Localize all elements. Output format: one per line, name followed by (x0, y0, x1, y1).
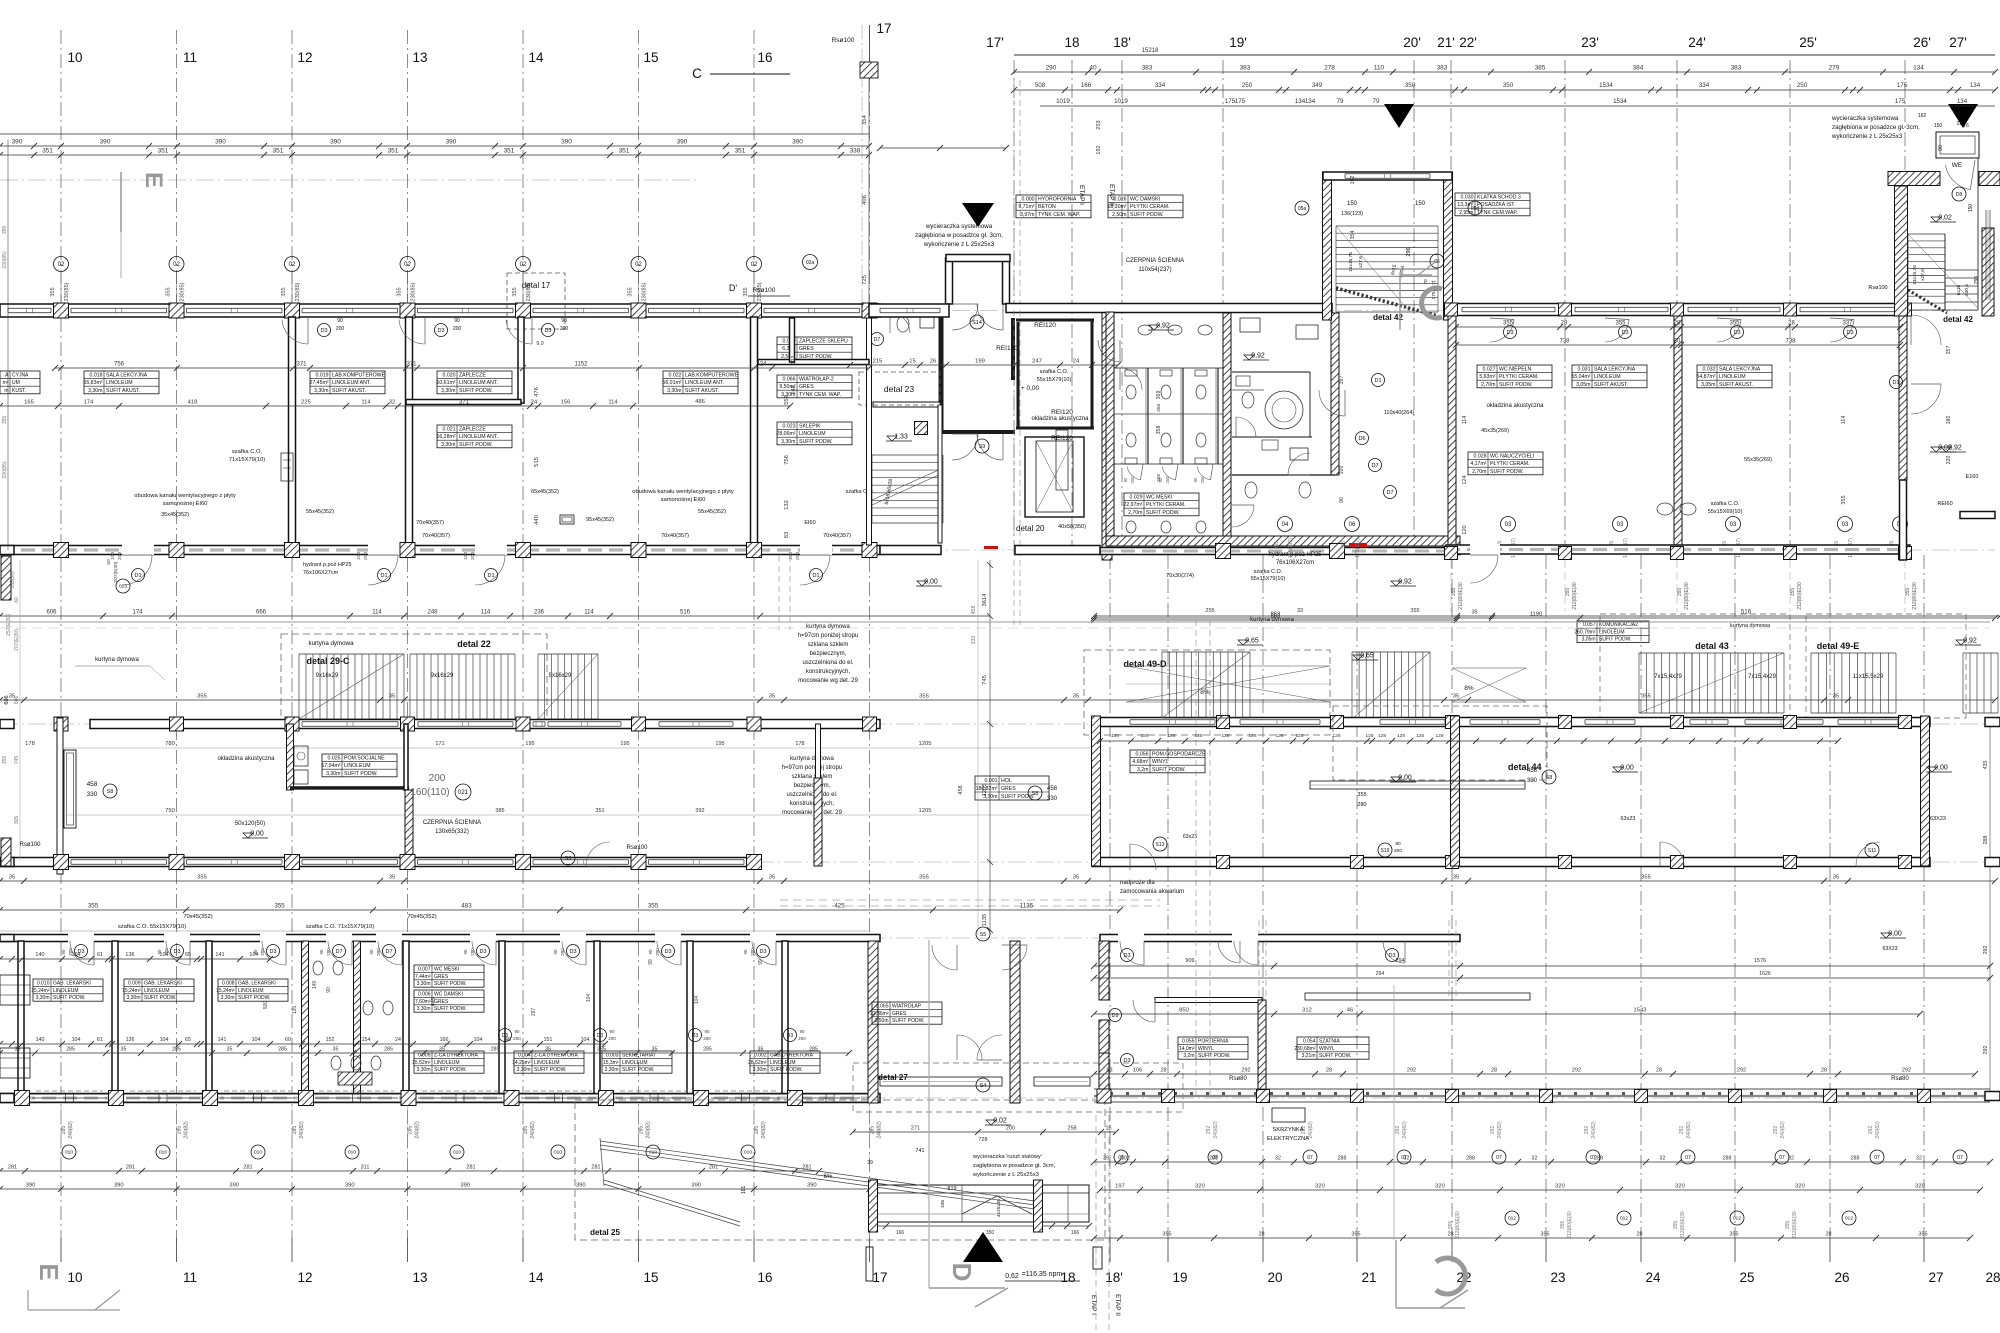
svg-text:166: 166 (1071, 1230, 1080, 1236)
svg-text:GRES: GRES (892, 1011, 907, 1017)
svg-text:7x15,4x29: 7x15,4x29 (1654, 674, 1682, 680)
svg-text:D3: D3 (664, 949, 671, 955)
svg-text:383: 383 (1437, 65, 1448, 72)
svg-text:114: 114 (372, 610, 382, 616)
svg-text:szafka C.O.: szafka C.O. (1040, 369, 1069, 375)
svg-text:0.010: 0.010 (37, 980, 50, 986)
svg-text:Rsø100: Rsø100 (832, 37, 855, 44)
svg-text:35: 35 (1471, 610, 1477, 616)
svg-text:154: 154 (362, 1037, 371, 1043)
svg-text:SUFIT PODW.: SUFIT PODW. (53, 995, 85, 1001)
svg-text:114: 114 (361, 400, 371, 406)
svg-text:114: 114 (584, 610, 594, 616)
svg-text:0,02: 0,02 (1938, 445, 1952, 452)
svg-text:7x15,4x29: 7x15,4x29 (1748, 674, 1776, 680)
svg-text:63x23: 63x23 (1621, 816, 1636, 822)
svg-text:35: 35 (769, 694, 775, 700)
svg-text:606: 606 (14, 696, 20, 705)
svg-text:390: 390 (576, 1183, 586, 1189)
svg-text:175: 175 (1235, 98, 1246, 105)
svg-text:355: 355 (1841, 495, 1847, 504)
svg-text:134: 134 (1913, 65, 1924, 72)
svg-text:285: 285 (384, 1047, 393, 1053)
svg-text:149: 149 (312, 981, 318, 990)
svg-text:128: 128 (1397, 733, 1405, 739)
svg-text:28,06m²: 28,06m² (776, 431, 795, 437)
svg-text:104: 104 (474, 1037, 483, 1043)
svg-text:15: 15 (643, 50, 658, 65)
svg-text:LINOLEUM ANT.: LINOLEUM ANT. (459, 380, 498, 386)
svg-text:750: 750 (165, 808, 175, 814)
svg-text:LINOLEUM: LINOLEUM (1599, 629, 1625, 635)
svg-text:55,04m²: 55,04m² (1571, 374, 1590, 380)
svg-text:SUFIT PODW.: SUFIT PODW. (1130, 212, 1164, 218)
svg-text:okładzina akustyczna: okładzina akustyczna (217, 756, 275, 762)
svg-text:358: 358 (1156, 474, 1162, 482)
svg-text:281: 281 (126, 1165, 135, 1171)
svg-text:ETAP II: ETAP II (1114, 1294, 1121, 1316)
svg-text:285: 285 (61, 1126, 67, 1135)
svg-text:07: 07 (1779, 1155, 1785, 1161)
svg-text:200: 200 (336, 326, 345, 332)
svg-text:3,30m: 3,30m (441, 442, 455, 448)
svg-text:195: 195 (715, 741, 724, 747)
svg-text:D3: D3 (1846, 330, 1853, 336)
svg-text:212(80)E|30: 212(80)E|30 (1567, 1211, 1573, 1239)
svg-text:28: 28 (1821, 1068, 1827, 1074)
svg-text:LINOLEUM: LINOLEUM (238, 988, 264, 994)
svg-text:756: 756 (784, 455, 790, 465)
svg-text:104: 104 (72, 1037, 81, 1043)
svg-text:LINOLEUM ANT.: LINOLEUM ANT. (332, 380, 371, 386)
svg-text:371: 371 (406, 362, 417, 368)
svg-text:90: 90 (609, 1029, 615, 1034)
svg-text:355: 355 (1410, 608, 1419, 614)
svg-text:281: 281 (243, 1165, 252, 1171)
svg-text:355: 355 (1357, 792, 1366, 798)
svg-text:1626: 1626 (1759, 971, 1771, 977)
svg-text:0,02: 0,02 (993, 1118, 1007, 1125)
svg-text:200: 200 (326, 948, 331, 956)
svg-text:508: 508 (1035, 82, 1046, 89)
svg-text:kurtyna dymowa: kurtyna dymowa (95, 657, 139, 663)
svg-text:2,70m: 2,70m (1128, 510, 1142, 516)
svg-text:76x106X27cm: 76x106X27cm (1276, 560, 1314, 566)
svg-text:3,30m: 3,30m (127, 995, 141, 1001)
svg-text:350: 350 (1503, 82, 1514, 89)
svg-text:04: 04 (1282, 522, 1289, 528)
svg-text:355: 355 (628, 287, 634, 296)
svg-text:CYJNA: CYJNA (12, 373, 29, 379)
svg-text:195: 195 (525, 741, 534, 747)
svg-text:166: 166 (440, 1037, 449, 1043)
svg-text:90: 90 (319, 949, 324, 955)
svg-text:390: 390 (215, 139, 226, 146)
svg-text:POM.SOCJALNE: POM.SOCJALNE (344, 756, 385, 762)
svg-text:55x15X69(10): 55x15X69(10) (1708, 509, 1743, 515)
svg-text:355: 355 (1641, 875, 1651, 881)
svg-text:33: 33 (1297, 608, 1303, 614)
svg-text:h=97cm poniżej stropu: h=97cm poniżej stropu (798, 633, 859, 639)
svg-text:141: 141 (215, 952, 224, 958)
svg-text:m: m (4, 388, 8, 394)
svg-text:666: 666 (256, 610, 267, 616)
svg-text:128: 128 (1248, 733, 1256, 739)
svg-text:24: 24 (1073, 359, 1080, 365)
svg-text:104: 104 (581, 1037, 590, 1043)
svg-text:240(82): 240(82) (877, 1121, 883, 1139)
svg-text:28: 28 (1788, 321, 1795, 327)
svg-text:458: 458 (1047, 786, 1058, 792)
svg-text:355: 355 (1451, 588, 1457, 597)
svg-text:KLATKA SCHOD.3: KLATKA SCHOD.3 (1477, 195, 1521, 201)
svg-text:355: 355 (2, 226, 8, 235)
svg-text:240(82): 240(82) (1875, 1121, 1881, 1139)
svg-text:70x40(357): 70x40(357) (661, 533, 689, 539)
svg-text:70x45(352): 70x45(352) (407, 914, 436, 920)
svg-text:50x120(50): 50x120(50) (235, 821, 265, 827)
svg-text:35: 35 (439, 1047, 445, 1053)
svg-text:230(85): 230(85) (2, 461, 8, 479)
svg-text:SUFIT PODW.: SUFIT PODW. (1499, 382, 1533, 388)
svg-text:SUFIT PODW.: SUFIT PODW. (1599, 637, 1631, 643)
svg-text:258: 258 (1067, 1126, 1076, 1132)
svg-text:55x15X79(10): 55x15X79(10) (1037, 377, 1072, 383)
svg-text:330: 330 (87, 791, 98, 798)
svg-text:REI120: REI120 (996, 345, 1018, 352)
svg-text:6x15: 6x15 (1956, 284, 1962, 295)
svg-text:9x16x29: 9x16x29 (549, 673, 572, 679)
svg-text:+ 0,00: + 0,00 (1021, 385, 1040, 392)
svg-text:19: 19 (1172, 1270, 1187, 1285)
svg-text:320: 320 (1915, 1184, 1925, 1190)
svg-text:60: 60 (106, 559, 112, 565)
svg-text:175: 175 (1895, 98, 1906, 105)
svg-text:369: 369 (1156, 391, 1162, 400)
svg-text:3,50m: 3,50m (875, 1018, 889, 1024)
svg-text:290: 290 (1046, 65, 1057, 72)
svg-text:0,92: 0,92 (1156, 323, 1170, 330)
svg-text:SUFIT PODW.: SUFIT PODW. (238, 995, 270, 1001)
svg-text:0.026: 0.026 (1114, 197, 1127, 203)
svg-text:257: 257 (1946, 346, 1952, 355)
svg-text:515: 515 (534, 457, 540, 467)
svg-text:134: 134 (1305, 98, 1316, 105)
svg-text:292: 292 (1983, 946, 1989, 955)
svg-text:h=97cm poniżej stropu: h=97cm poniżej stropu (782, 765, 843, 771)
svg-text:63x23: 63x23 (1183, 834, 1197, 840)
svg-text:35: 35 (389, 875, 395, 881)
svg-text:WC MĘSKI: WC MĘSKI (1146, 495, 1172, 501)
svg-text:15,24m²: 15,24m² (122, 988, 141, 994)
svg-text:200: 200 (376, 948, 381, 956)
svg-text:128: 128 (1167, 733, 1175, 739)
svg-text:03: 03 (1730, 522, 1737, 528)
svg-text:248: 248 (427, 610, 438, 616)
svg-text:240(82): 240(82) (1213, 1121, 1219, 1139)
svg-text:320: 320 (1195, 1184, 1205, 1190)
svg-text:355: 355 (88, 903, 99, 910)
svg-text:292: 292 (1983, 1046, 1989, 1055)
svg-text:D1: D1 (487, 573, 494, 579)
svg-text:013: 013 (119, 584, 127, 590)
svg-text:010: 010 (554, 1150, 562, 1156)
svg-text:70x45(352): 70x45(352) (183, 914, 212, 920)
svg-text:0,00: 0,00 (1398, 775, 1412, 782)
svg-text:SUFIT PODW.: SUFIT PODW. (770, 1067, 802, 1073)
svg-text:SUFIT PODW.: SUFIT PODW. (1146, 510, 1180, 516)
svg-text:35: 35 (758, 1047, 764, 1053)
svg-text:114: 114 (1841, 416, 1847, 425)
svg-text:355(30): 355(30) (10, 571, 16, 589)
svg-text:0,65: 0,65 (1245, 638, 1259, 645)
svg-text:63: 63 (1106, 1068, 1112, 1074)
svg-text:368: 368 (1156, 404, 1162, 412)
svg-text:D3: D3 (1388, 953, 1395, 959)
svg-text:279: 279 (1829, 65, 1840, 72)
svg-text:wycieraczka systemowa: wycieraczka systemowa (925, 223, 993, 230)
svg-text:136(123): 136(123) (1341, 211, 1363, 217)
svg-text:07: 07 (1874, 1155, 1880, 1161)
svg-text:0.025: 0.025 (328, 756, 341, 762)
svg-text:0.023: 0.023 (783, 424, 796, 430)
svg-text:LAB.KOMPUTEROWE: LAB.KOMPUTEROWE (332, 373, 386, 379)
svg-text:3,30m: 3,30m (781, 439, 795, 445)
svg-text:detal 49-D: detal 49-D (1123, 659, 1167, 669)
svg-text:99: 99 (648, 959, 654, 965)
svg-text:1205: 1205 (919, 741, 932, 747)
svg-text:15: 15 (1105, 1126, 1111, 1132)
svg-text:296: 296 (1406, 247, 1412, 256)
svg-text:3,30m: 3,30m (326, 771, 340, 777)
svg-text:39: 39 (867, 1160, 873, 1166)
svg-text:355: 355 (512, 287, 518, 296)
svg-text:detal 42: detal 42 (1373, 313, 1403, 322)
svg-text:60: 60 (285, 1037, 291, 1043)
svg-text:278: 278 (1324, 65, 1335, 72)
svg-text:samonośnej EI60: samonośnej EI60 (163, 501, 208, 507)
svg-text:305: 305 (14, 816, 20, 825)
svg-text:detal 25: detal 25 (590, 1228, 620, 1237)
svg-text:22,36m²: 22,36m² (870, 1011, 889, 1017)
svg-text:010: 010 (254, 1150, 262, 1156)
svg-text:28,52m²: 28,52m² (748, 1060, 767, 1066)
svg-text:GRES: GRES (434, 999, 449, 1005)
svg-text:128: 128 (1332, 733, 1340, 739)
svg-text:x27,6: x27,6 (1920, 269, 1926, 281)
svg-text:61: 61 (97, 1037, 103, 1043)
svg-text:355: 355 (197, 875, 207, 881)
svg-text:247: 247 (1032, 359, 1042, 365)
svg-text:281: 281 (591, 1165, 600, 1171)
svg-text:292: 292 (1241, 1068, 1250, 1074)
svg-text:355: 355 (919, 875, 929, 881)
svg-text:351: 351 (504, 148, 515, 155)
svg-text:PŁYTKI CERAM.: PŁYTKI CERAM. (1490, 461, 1530, 467)
svg-text:174: 174 (132, 610, 143, 616)
svg-text:HOL: HOL (1001, 778, 1012, 784)
svg-text:Rsø80: Rsø80 (1229, 1076, 1247, 1082)
svg-text:165: 165 (24, 400, 34, 406)
svg-text:199: 199 (975, 359, 985, 365)
svg-text:S14: S14 (972, 320, 982, 326)
svg-text:240(82): 240(82) (1402, 1121, 1408, 1139)
svg-text:PORTIERNIA: PORTIERNIA (1198, 1038, 1229, 1044)
svg-text:0.018: 0.018 (90, 373, 103, 379)
svg-text:0.019: 0.019 (316, 373, 329, 379)
svg-text:140: 140 (36, 1037, 45, 1043)
svg-text:Rsø100: Rsø100 (753, 287, 776, 294)
svg-text:28: 28 (1447, 1232, 1453, 1238)
svg-text:240(82): 240(82) (184, 1121, 190, 1139)
svg-text:26: 26 (930, 359, 936, 365)
svg-text:SUFIT PODW.: SUFIT PODW. (434, 981, 466, 987)
svg-text:32: 32 (389, 400, 395, 406)
svg-text:54,87m²: 54,87m² (1696, 374, 1715, 380)
svg-text:4,17m²: 4,17m² (1470, 461, 1486, 467)
svg-text:355: 355 (1918, 1232, 1927, 1238)
svg-text:100: 100 (356, 552, 362, 560)
svg-text:292: 292 (1902, 1068, 1911, 1074)
svg-text:02: 02 (635, 262, 642, 268)
svg-text:150: 150 (1956, 121, 1965, 127)
svg-text:271: 271 (911, 1126, 920, 1132)
svg-text:516: 516 (680, 610, 691, 616)
svg-text:1205: 1205 (982, 784, 988, 797)
svg-text:GAB. LEKARSKI: GAB. LEKARSKI (53, 980, 91, 986)
svg-text:136: 136 (126, 1037, 135, 1043)
svg-text:312: 312 (1302, 1008, 1312, 1014)
svg-text:03: 03 (1505, 522, 1512, 528)
svg-text:07: 07 (1957, 1155, 1963, 1161)
svg-text:150: 150 (1934, 123, 1943, 129)
svg-text:458: 458 (87, 781, 98, 788)
svg-text:212(80)E|30: 212(80)E|30 (1680, 1211, 1686, 1239)
svg-text:GRES: GRES (799, 384, 814, 390)
svg-text:GRES: GRES (1001, 786, 1016, 792)
svg-text:780: 780 (165, 741, 175, 747)
svg-text:355: 355 (1560, 1221, 1566, 1230)
svg-text:355: 355 (1448, 1221, 1454, 1230)
svg-text:100: 100 (110, 552, 116, 560)
svg-text:104: 104 (252, 1037, 261, 1043)
svg-text:SUFIT PODW.: SUFIT PODW. (344, 771, 378, 777)
svg-text:3,30m: 3,30m (221, 995, 235, 1001)
svg-text:14,0m²: 14,0m² (1179, 1046, 1195, 1052)
svg-text:371: 371 (296, 362, 307, 368)
svg-text:128: 128 (1221, 733, 1229, 739)
svg-text:200: 200 (470, 948, 475, 956)
svg-text:110x54(237): 110x54(237) (1138, 267, 1171, 273)
svg-text:0,00: 0,00 (1934, 765, 1948, 772)
svg-text:WIATROŁAP-2: WIATROŁAP-2 (799, 377, 834, 383)
svg-text:55x35(269): 55x35(269) (1744, 457, 1772, 463)
svg-text:SALA LEKCYJNA: SALA LEKCYJNA (1719, 367, 1761, 373)
svg-text:2,70m: 2,70m (1481, 382, 1495, 388)
svg-text:200: 200 (655, 948, 660, 956)
svg-text:02: 02 (58, 262, 65, 268)
svg-text:detal 17: detal 17 (522, 281, 551, 290)
svg-text:61: 61 (97, 952, 103, 958)
svg-text:745: 745 (982, 675, 988, 685)
svg-text:0.057: 0.057 (1583, 622, 1596, 628)
svg-text:26: 26 (1834, 1270, 1849, 1285)
svg-text:3,30m: 3,30m (517, 1067, 531, 1073)
svg-text:D1: D1 (134, 573, 141, 579)
svg-text:D3: D3 (1123, 1058, 1130, 1064)
svg-text:010: 010 (348, 1150, 356, 1156)
svg-text:65: 65 (185, 952, 191, 958)
svg-text:355: 355 (1341, 541, 1347, 550)
svg-text:D3: D3 (692, 1033, 699, 1039)
svg-text:D3: D3 (320, 328, 327, 334)
svg-text:385: 385 (495, 808, 504, 814)
svg-text:39: 39 (1103, 1156, 1109, 1162)
svg-text:128: 128 (1194, 733, 1202, 739)
svg-text:24: 24 (760, 362, 767, 368)
svg-text:0.030: 0.030 (1461, 195, 1474, 201)
svg-text:WC MĘSKI: WC MĘSKI (434, 966, 459, 972)
svg-text:kurtyna dymowa: kurtyna dymowa (790, 756, 834, 762)
svg-text:detal 27: detal 27 (878, 1073, 908, 1082)
svg-text:220: 220 (1946, 456, 1952, 465)
svg-text:406: 406 (862, 195, 868, 205)
svg-text:KOMUNIKACJA2: KOMUNIKACJA2 (1599, 622, 1638, 628)
svg-text:70x30(274): 70x30(274) (1166, 573, 1194, 579)
svg-text:27: 27 (1928, 1270, 1943, 1285)
svg-text:D': D' (729, 283, 737, 293)
svg-text:288: 288 (1851, 1156, 1860, 1162)
svg-text:285: 285 (809, 1047, 818, 1053)
svg-text:330: 330 (1527, 778, 1538, 784)
svg-text:35: 35 (389, 694, 395, 700)
svg-text:0.022: 0.022 (669, 373, 682, 379)
svg-text:23': 23' (1581, 35, 1599, 50)
svg-text:355: 355 (281, 287, 287, 296)
svg-text:355: 355 (1905, 588, 1911, 597)
svg-text:200: 200 (560, 948, 565, 956)
svg-text:70x40(357): 70x40(357) (422, 533, 450, 539)
svg-text:SUFIT PODW.: SUFIT PODW. (144, 995, 176, 1001)
svg-text:detal 23: detal 23 (884, 384, 915, 394)
svg-text:WINYL: WINYL (1198, 1046, 1214, 1052)
svg-text:WE: WE (1952, 162, 1963, 169)
svg-text:285: 285 (870, 1126, 876, 1135)
svg-text:128: 128 (1140, 733, 1148, 739)
svg-text:90: 90 (743, 949, 748, 955)
svg-text:D8: D8 (1956, 192, 1963, 198)
svg-text:LINOLEUM: LINOLEUM (1719, 374, 1746, 380)
svg-text:3,30m: 3,30m (88, 388, 102, 394)
svg-text:szklana szkłem: szklana szkłem (792, 774, 833, 780)
svg-text:134: 134 (1970, 82, 1981, 89)
svg-text:100: 100 (788, 552, 794, 560)
svg-text:TYNK CEM.WAP.: TYNK CEM.WAP. (1477, 210, 1518, 216)
svg-text:POSADZKA IST.: POSADZKA IST. (1477, 202, 1515, 208)
svg-text:0,00: 0,00 (1620, 765, 1634, 772)
svg-text:SUFIT PODW.: SUFIT PODW. (434, 1067, 466, 1073)
svg-text:D7: D7 (335, 949, 342, 955)
svg-text:330: 330 (971, 636, 977, 645)
svg-text:134: 134 (1957, 98, 1968, 105)
svg-text:390: 390 (114, 1183, 124, 1189)
svg-text:WIATROŁAP: WIATROŁAP (892, 1003, 922, 1009)
svg-text:7,44m²: 7,44m² (415, 974, 431, 980)
svg-text:20': 20' (1403, 35, 1421, 50)
svg-text:476: 476 (534, 387, 540, 397)
svg-text:418: 418 (188, 400, 198, 406)
svg-text:9x16x29: 9x16x29 (316, 673, 339, 679)
